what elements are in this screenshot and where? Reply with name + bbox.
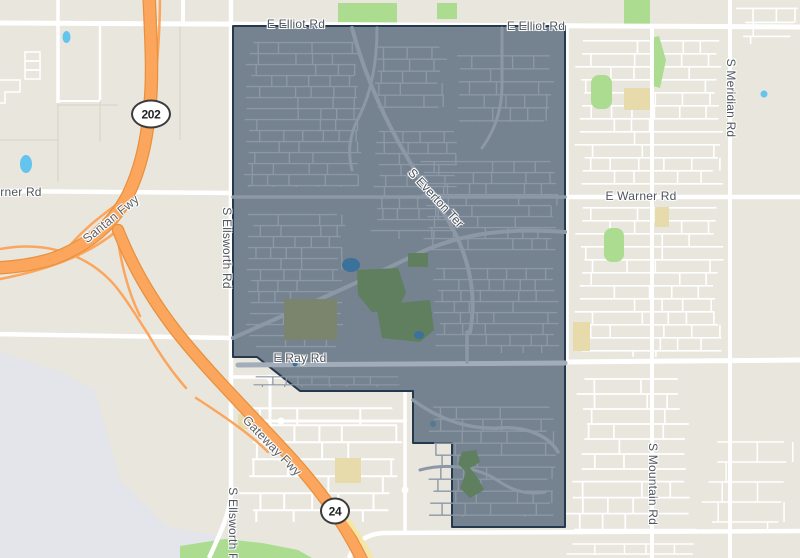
pond-in-boundary bbox=[293, 362, 298, 367]
park-area-in-boundary bbox=[408, 253, 428, 267]
school-area bbox=[335, 458, 361, 483]
roundabout bbox=[402, 487, 409, 494]
map-canvas bbox=[0, 0, 800, 558]
water-pond bbox=[761, 91, 768, 98]
park-area-in-boundary bbox=[284, 299, 337, 340]
school-area bbox=[624, 88, 650, 110]
school-area bbox=[573, 322, 590, 351]
pond-in-boundary bbox=[342, 258, 360, 272]
school-area bbox=[655, 207, 669, 227]
park-area-in-boundary bbox=[376, 300, 434, 342]
park-area bbox=[624, 0, 650, 25]
roundabout bbox=[278, 418, 285, 425]
water-pond bbox=[20, 155, 32, 173]
map-viewport[interactable]: E Elliot RdE Elliot RdWarner RdE Warner … bbox=[0, 0, 800, 558]
park-area bbox=[437, 3, 457, 19]
park-area bbox=[338, 3, 397, 23]
water-pond bbox=[63, 31, 71, 43]
park-area bbox=[604, 228, 624, 262]
park-area bbox=[591, 75, 612, 109]
pond-in-boundary bbox=[414, 331, 424, 339]
